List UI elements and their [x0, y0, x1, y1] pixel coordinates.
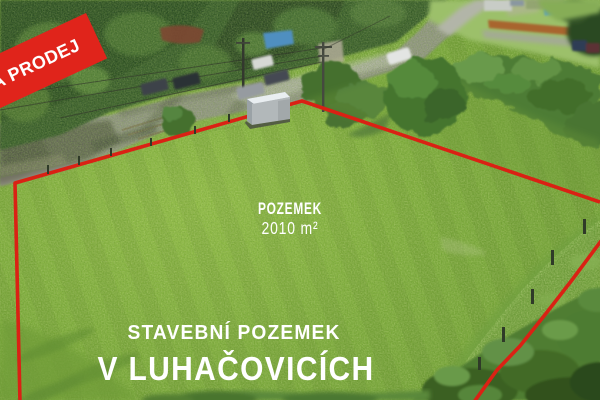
svg-text:STAVEBNÍ POZEMEK: STAVEBNÍ POZEMEK — [128, 321, 341, 344]
svg-text:POZEMEK: POZEMEK — [258, 200, 322, 218]
svg-text:V LUHAČOVICÍCH: V LUHAČOVICÍCH — [98, 349, 375, 387]
svg-text:2010 m²: 2010 m² — [262, 218, 319, 238]
